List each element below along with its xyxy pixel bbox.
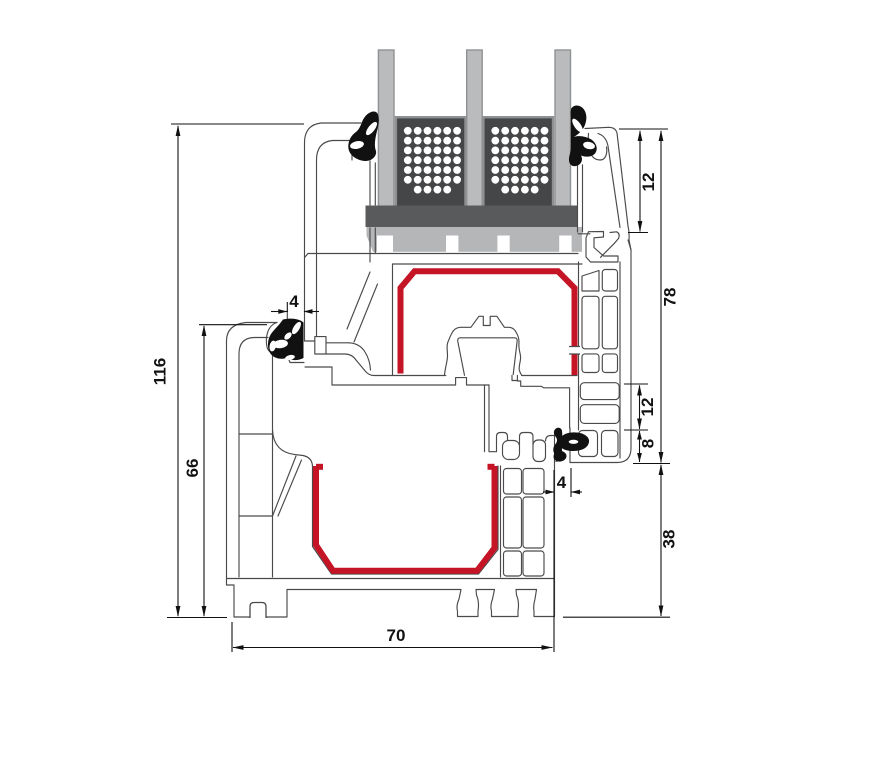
svg-text:12: 12 xyxy=(638,398,657,417)
svg-text:38: 38 xyxy=(660,530,679,549)
svg-text:4: 4 xyxy=(289,292,299,311)
svg-text:116: 116 xyxy=(151,358,170,385)
svg-text:8: 8 xyxy=(639,439,658,448)
svg-text:4: 4 xyxy=(557,473,567,492)
svg-text:78: 78 xyxy=(661,288,680,307)
svg-text:70: 70 xyxy=(387,626,406,645)
svg-text:66: 66 xyxy=(183,459,202,478)
svg-text:12: 12 xyxy=(639,173,658,192)
